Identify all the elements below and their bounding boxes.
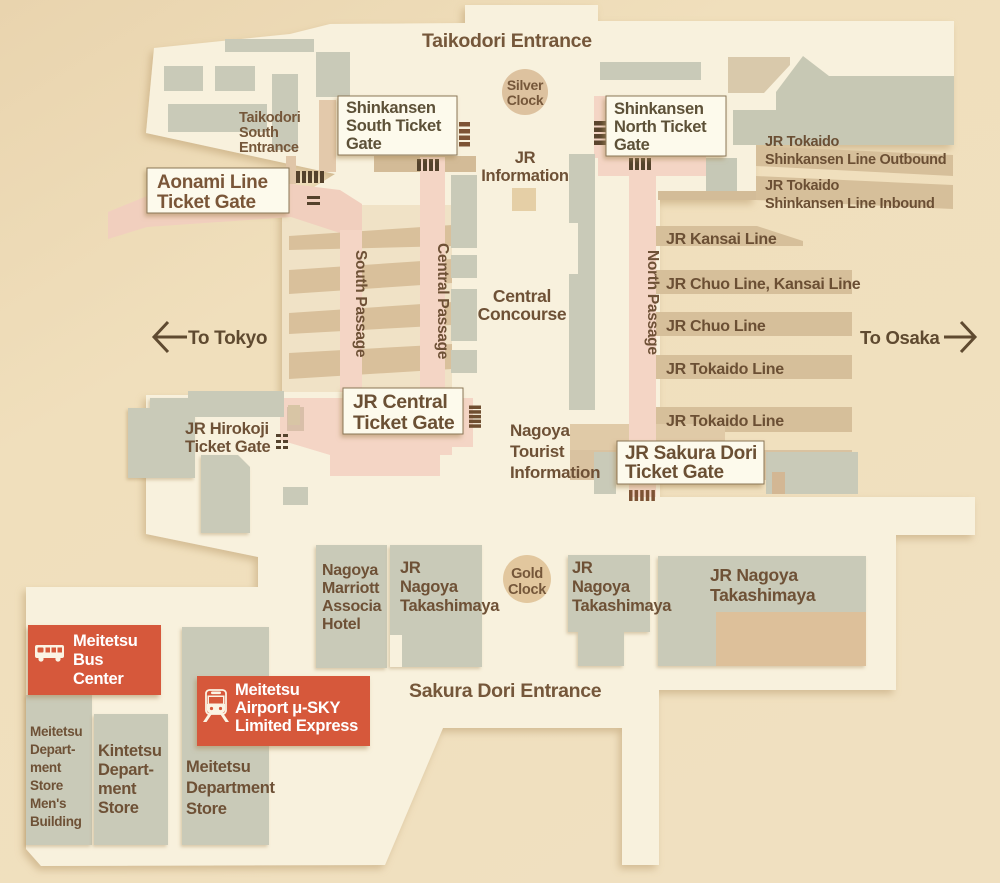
svg-text:Taikodori: Taikodori	[239, 110, 300, 126]
svg-text:JR Chuo Line, Kansai Line: JR Chuo Line, Kansai Line	[666, 276, 861, 293]
svg-text:JR Kansai Line: JR Kansai Line	[666, 231, 777, 248]
svg-text:Shinkansen Line Outbound: Shinkansen Line Outbound	[765, 152, 946, 168]
svg-text:Shinkansen: Shinkansen	[614, 100, 704, 118]
svg-text:Store: Store	[98, 799, 139, 817]
svg-text:Meitetsu: Meitetsu	[235, 681, 300, 699]
svg-text:Men's: Men's	[30, 796, 66, 811]
svg-text:JR Nagoya: JR Nagoya	[710, 565, 798, 585]
svg-text:Takashimaya: Takashimaya	[710, 585, 816, 605]
svg-text:South: South	[239, 125, 279, 141]
svg-text:South Ticket: South Ticket	[346, 117, 442, 135]
svg-text:Nagoya: Nagoya	[510, 421, 570, 440]
svg-text:Depart-: Depart-	[30, 742, 75, 757]
svg-text:Hotel: Hotel	[322, 616, 361, 633]
svg-text:Aonami Line: Aonami Line	[157, 172, 268, 193]
svg-text:Central: Central	[493, 286, 551, 306]
svg-text:Silver: Silver	[507, 77, 544, 93]
svg-text:ment: ment	[98, 780, 137, 798]
svg-text:JR: JR	[400, 559, 421, 577]
svg-text:To Tokyo: To Tokyo	[188, 328, 267, 349]
svg-text:JR Central: JR Central	[353, 391, 448, 413]
svg-text:Concourse: Concourse	[478, 304, 567, 324]
svg-text:Nagoya: Nagoya	[572, 578, 631, 596]
svg-text:Information: Information	[510, 463, 600, 482]
svg-text:JR Tokaido: JR Tokaido	[765, 178, 840, 194]
svg-text:South Passage: South Passage	[352, 250, 369, 358]
svg-text:Kintetsu: Kintetsu	[98, 742, 162, 760]
svg-text:JR Tokaido Line: JR Tokaido Line	[666, 361, 784, 378]
svg-text:Airport μ-SKY: Airport μ-SKY	[235, 699, 340, 717]
svg-text:Central Passage: Central Passage	[434, 243, 451, 360]
svg-text:Meitetsu: Meitetsu	[186, 758, 251, 776]
svg-text:Takashimaya: Takashimaya	[400, 597, 500, 615]
svg-text:Depart-: Depart-	[98, 761, 154, 779]
svg-text:JR Hirokoji: JR Hirokoji	[185, 420, 269, 438]
svg-text:JR: JR	[515, 149, 536, 167]
svg-text:JR Chuo Line: JR Chuo Line	[666, 318, 766, 335]
svg-text:Gate: Gate	[346, 135, 382, 153]
svg-text:Takashimaya: Takashimaya	[572, 597, 672, 615]
svg-text:Department: Department	[186, 779, 275, 797]
svg-text:Bus: Bus	[73, 651, 103, 669]
svg-text:Shinkansen: Shinkansen	[346, 99, 436, 117]
svg-text:Gate: Gate	[614, 136, 650, 154]
svg-text:Meitetsu: Meitetsu	[30, 724, 82, 739]
svg-text:Shinkansen Line Inbound: Shinkansen Line Inbound	[765, 196, 935, 212]
svg-text:Nagoya: Nagoya	[400, 578, 459, 596]
svg-text:North Passage: North Passage	[644, 250, 661, 355]
svg-text:Center: Center	[73, 670, 124, 688]
svg-text:North Ticket: North Ticket	[614, 118, 707, 136]
svg-text:ment: ment	[30, 760, 62, 775]
svg-text:Store: Store	[30, 778, 64, 793]
svg-text:Information: Information	[481, 167, 569, 185]
svg-text:Ticket Gate: Ticket Gate	[625, 462, 724, 483]
svg-text:Clock: Clock	[507, 92, 544, 108]
svg-text:JR: JR	[572, 559, 593, 577]
svg-text:Clock: Clock	[508, 582, 547, 598]
svg-text:Limited Express: Limited Express	[235, 717, 358, 735]
svg-text:Entrance: Entrance	[239, 140, 299, 156]
svg-text:Associa: Associa	[322, 598, 382, 615]
svg-text:Ticket Gate: Ticket Gate	[353, 412, 455, 434]
svg-text:Meitetsu: Meitetsu	[73, 632, 138, 650]
svg-text:Building: Building	[30, 814, 82, 829]
svg-text:Marriott: Marriott	[322, 580, 380, 597]
svg-text:Tourist: Tourist	[510, 442, 565, 461]
svg-text:Gold: Gold	[511, 566, 543, 582]
svg-text:JR Sakura Dori: JR Sakura Dori	[625, 443, 757, 464]
svg-text:Ticket Gate: Ticket Gate	[185, 438, 270, 456]
svg-text:JR Tokaido Line: JR Tokaido Line	[666, 413, 784, 430]
svg-text:Taikodori Entrance: Taikodori Entrance	[422, 30, 592, 52]
svg-text:JR Tokaido: JR Tokaido	[765, 134, 840, 150]
svg-text:Ticket Gate: Ticket Gate	[157, 192, 256, 213]
svg-text:To Osaka: To Osaka	[860, 327, 941, 348]
svg-text:Nagoya: Nagoya	[322, 562, 378, 579]
svg-text:Store: Store	[186, 800, 227, 818]
svg-text:Sakura Dori Entrance: Sakura Dori Entrance	[409, 680, 602, 702]
